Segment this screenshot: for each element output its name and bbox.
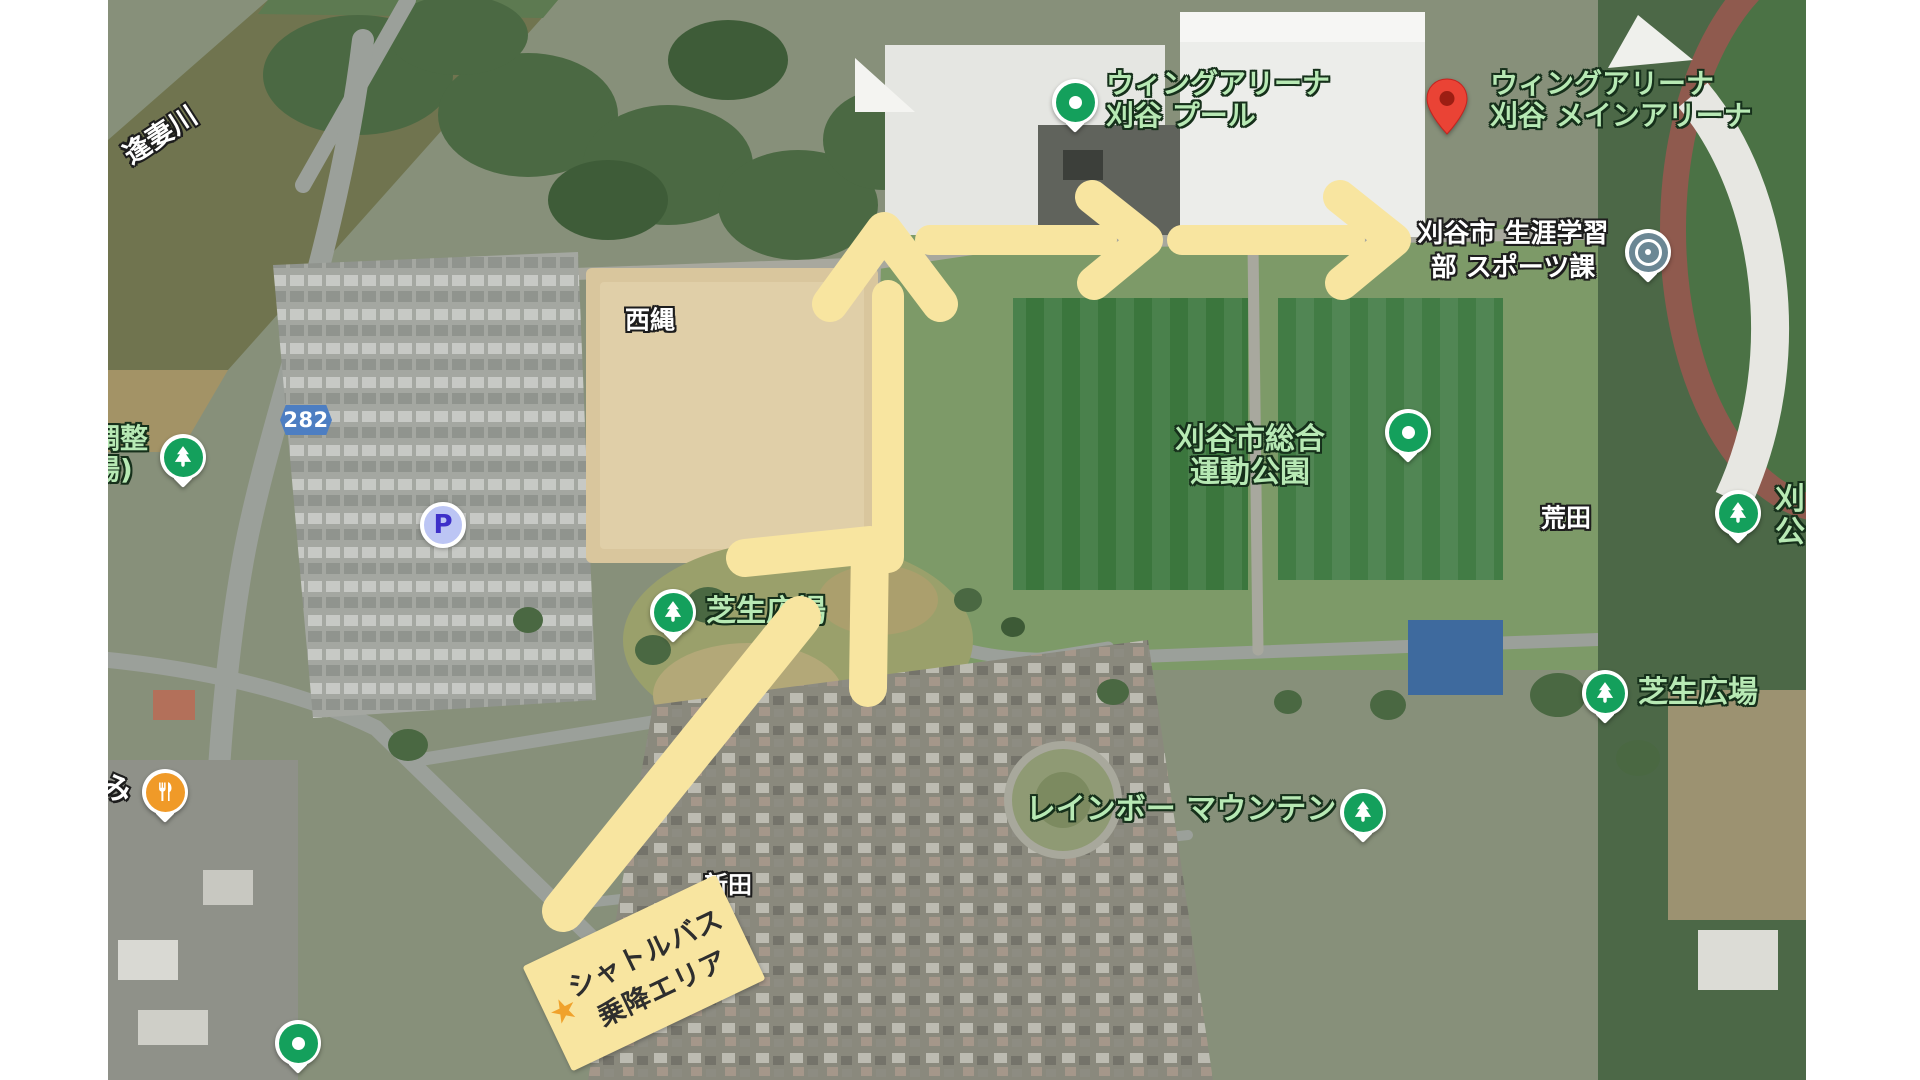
rainbow-mountain-tree-pin[interactable] bbox=[1340, 789, 1386, 835]
nishinawa-label: 西縄 bbox=[625, 307, 675, 336]
red-marker-icon bbox=[1425, 78, 1469, 136]
kariya-park-clipped-label: 刈 公 bbox=[1775, 483, 1805, 549]
lawn-plaza-right-tree-pin[interactable] bbox=[1582, 670, 1628, 716]
poi-label-lawn-plaza-right[interactable]: 芝生広場 bbox=[1638, 676, 1758, 711]
poi-label-pool[interactable]: ウィングアリーナ 刈谷 プール bbox=[1106, 68, 1330, 132]
poi-label-main-arena[interactable]: ウィングアリーナ 刈谷 メインアリーナ bbox=[1490, 68, 1752, 132]
parking-icon[interactable]: P bbox=[420, 502, 466, 548]
fork-knife-icon bbox=[146, 773, 185, 812]
south-poi-pin[interactable] bbox=[275, 1020, 321, 1066]
tree-icon bbox=[1344, 793, 1383, 832]
poi-label-lawn-plaza-left[interactable]: 芝生広場 bbox=[706, 595, 826, 630]
arata-label: 荒田 bbox=[1541, 505, 1591, 534]
tree-icon bbox=[654, 593, 693, 632]
sports-division-pin[interactable] bbox=[1625, 229, 1671, 275]
sports-park-pin[interactable] bbox=[1385, 409, 1431, 455]
poi-label-sports-division[interactable]: 刈谷市 生涯学習 部 スポーツ課 bbox=[1404, 218, 1622, 286]
civic-target-icon bbox=[1629, 233, 1668, 272]
restaurant-pin[interactable] bbox=[142, 769, 188, 815]
tree-icon bbox=[1719, 494, 1758, 533]
screenshot-stage: 逢妻川 ウィングアリーナ 刈谷 プール ウィングアリーナ 刈谷 メインアリーナ … bbox=[0, 0, 1920, 1080]
green-dot-icon bbox=[1056, 83, 1095, 122]
chousei-tree-pin[interactable] bbox=[160, 434, 206, 480]
tree-icon bbox=[164, 438, 203, 477]
poi-label-sports-park[interactable]: 刈谷市総合 運動公園 bbox=[1175, 423, 1325, 489]
satellite-terrain bbox=[108, 0, 1806, 1080]
kariya-park-tree-pin[interactable] bbox=[1715, 490, 1761, 536]
green-dot-icon bbox=[1389, 413, 1428, 452]
main-arena-red-marker[interactable] bbox=[1425, 78, 1469, 140]
chousei-label: 調整 場) bbox=[108, 424, 148, 486]
lawn-plaza-left-tree-pin[interactable] bbox=[650, 589, 696, 635]
satellite-map-canvas[interactable]: 逢妻川 ウィングアリーナ 刈谷 プール ウィングアリーナ 刈谷 メインアリーナ … bbox=[108, 0, 1806, 1080]
tree-icon bbox=[1586, 674, 1625, 713]
route-282-badge: 282 bbox=[280, 405, 332, 435]
pool-pin[interactable] bbox=[1052, 79, 1098, 125]
poi-label-rainbow-mountain[interactable]: レインボー マウンテン bbox=[1026, 793, 1336, 828]
green-dot-icon bbox=[279, 1024, 318, 1063]
